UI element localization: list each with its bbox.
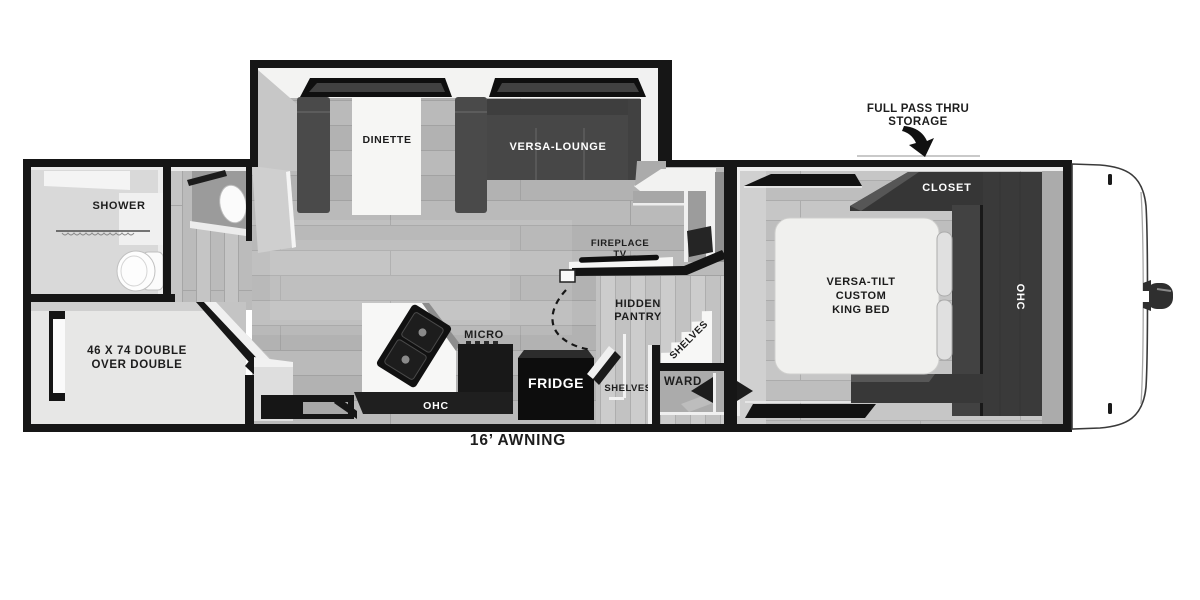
- svg-text:MICRO: MICRO: [464, 329, 504, 341]
- svg-text:VERSA-LOUNGE: VERSA-LOUNGE: [509, 141, 606, 153]
- svg-text:FRIDGE: FRIDGE: [528, 375, 584, 391]
- svg-text:OHC: OHC: [423, 400, 449, 412]
- svg-text:DINETTE: DINETTE: [362, 134, 411, 146]
- svg-text:16’ AWNING: 16’ AWNING: [470, 432, 566, 449]
- svg-text:HIDDEN: HIDDEN: [615, 298, 661, 310]
- svg-text:STORAGE: STORAGE: [888, 116, 947, 128]
- svg-text:CLOSET: CLOSET: [922, 182, 971, 194]
- svg-text:TV: TV: [613, 249, 626, 260]
- svg-text:46 X 74 DOUBLE: 46 X 74 DOUBLE: [87, 345, 187, 357]
- svg-text:SHELVES: SHELVES: [604, 383, 651, 394]
- svg-text:KING BED: KING BED: [832, 304, 890, 316]
- svg-text:FULL PASS THRU: FULL PASS THRU: [867, 103, 969, 115]
- svg-text:FIREPLACE: FIREPLACE: [591, 238, 649, 249]
- svg-text:OHC: OHC: [1014, 284, 1026, 311]
- svg-text:PANTRY: PANTRY: [614, 311, 662, 323]
- svg-text:SHOWER: SHOWER: [92, 200, 145, 212]
- svg-text:WARD: WARD: [664, 376, 702, 388]
- svg-text:CUSTOM: CUSTOM: [836, 290, 886, 302]
- svg-text:OVER DOUBLE: OVER DOUBLE: [92, 359, 183, 371]
- svg-text:VERSA-TILT: VERSA-TILT: [827, 276, 896, 288]
